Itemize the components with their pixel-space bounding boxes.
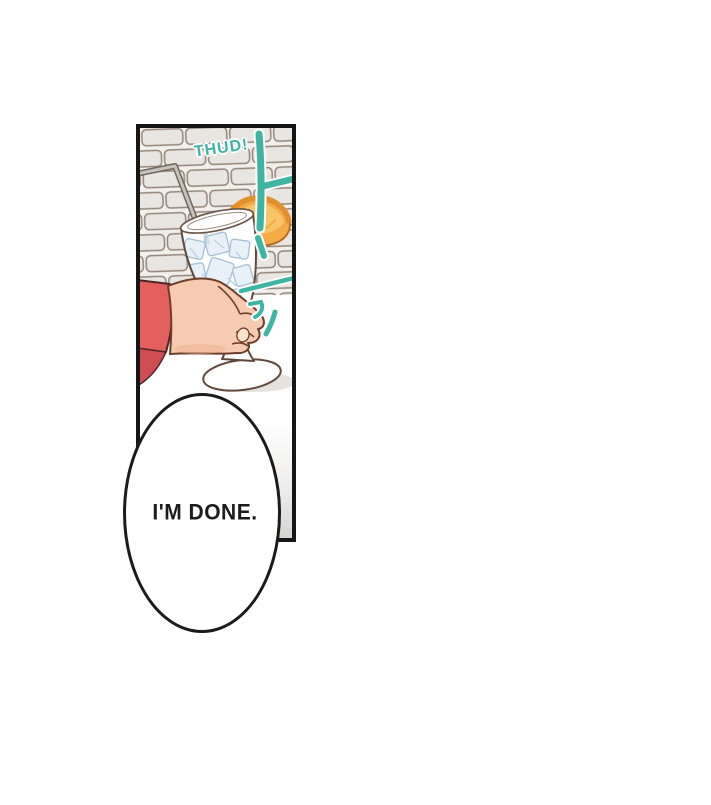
sleeve-fold — [140, 348, 166, 386]
red-sleeve — [140, 280, 173, 356]
speech-text: I'M DONE. — [146, 500, 257, 525]
page-background: THUD! I'M DONE. — [0, 0, 711, 805]
speech-bubble: I'M DONE. — [123, 393, 281, 633]
